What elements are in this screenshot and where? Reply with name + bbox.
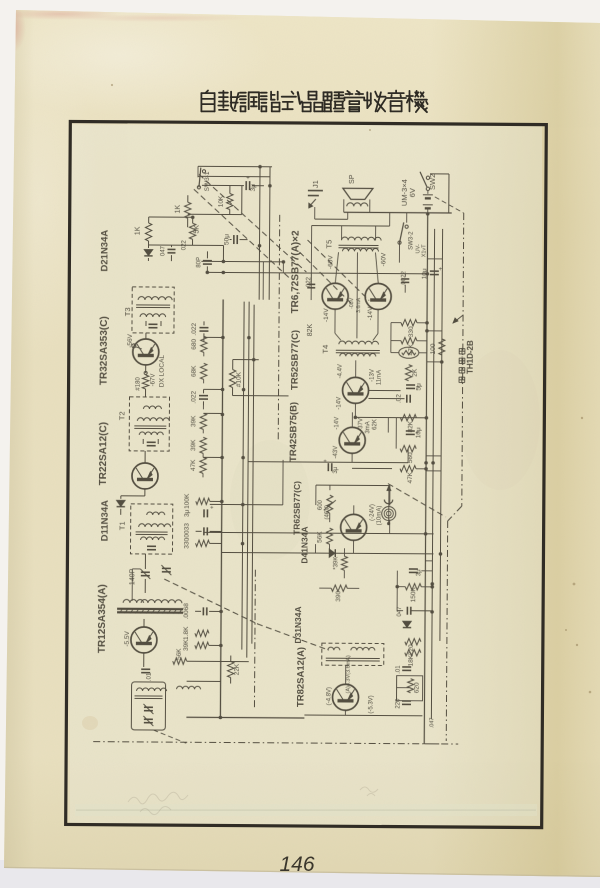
svg-text:47K: 47K (190, 459, 197, 471)
svg-text:+: + (323, 459, 327, 465)
svg-text:TR82SA12(A): TR82SA12(A) (295, 647, 306, 707)
svg-text:39K: 39K (190, 415, 197, 427)
svg-text:80P: 80P (196, 257, 202, 268)
svg-text:TR22SA12(C): TR22SA12(C) (98, 422, 109, 485)
svg-text:-14V: -14V (336, 397, 342, 410)
svg-text:(-4.8V): (-4.8V) (326, 687, 332, 705)
svg-text:*39K: *39K (333, 557, 339, 570)
svg-text:SW2: SW2 (428, 174, 437, 190)
svg-text:3μ: 3μ (184, 509, 191, 517)
svg-text:SW3-2: SW3-2 (408, 231, 414, 250)
svg-text:680: 680 (191, 338, 198, 349)
svg-text:39K: 39K (183, 639, 190, 651)
svg-text:3mA: 3mA (365, 421, 371, 433)
svg-text:100: 100 (430, 343, 437, 354)
svg-text:10μ: 10μ (415, 427, 422, 438)
svg-text:T2: T2 (117, 411, 126, 420)
svg-text:.0068: .0068 (183, 603, 190, 620)
svg-text:T5: T5 (324, 240, 333, 249)
svg-text:-14V: -14V (323, 308, 330, 322)
svg-text:SW3-1: SW3-1 (204, 171, 211, 191)
svg-text:D31N34A: D31N34A (293, 606, 303, 643)
svg-text:56K: 56K (317, 531, 324, 543)
svg-text:1K: 1K (175, 205, 182, 214)
svg-text:1.8K: 1.8K (183, 626, 190, 640)
svg-text:047: 047 (397, 606, 403, 617)
svg-text:140P: 140P (129, 568, 136, 585)
svg-text:.0033: .0033 (184, 523, 191, 540)
svg-text:150K: 150K (410, 586, 417, 602)
svg-text:022: 022 (181, 240, 187, 251)
svg-text:330: 330 (184, 537, 191, 548)
svg-text:6V: 6V (408, 188, 417, 197)
svg-text:-5.5V: -5.5V (124, 630, 131, 646)
svg-text:-56V: -56V (127, 333, 134, 347)
svg-text:620: 620 (414, 682, 421, 693)
svg-text:-60V: -60V (380, 252, 387, 266)
svg-text:146: 146 (279, 853, 314, 876)
svg-text:68K: 68K (191, 365, 198, 377)
svg-text:+: + (210, 505, 214, 511)
svg-text:-67V: -67V (151, 374, 157, 387)
svg-text:56K: 56K (176, 648, 183, 660)
svg-text:T1: T1 (118, 521, 127, 530)
svg-text:390: 390 (335, 590, 342, 601)
svg-text:TR6,72SB77(A)×2: TR6,72SB77(A)×2 (290, 230, 302, 314)
svg-text:-37V: -37V (358, 418, 364, 431)
svg-text:#180: #180 (136, 377, 142, 391)
svg-text:22K: 22K (234, 663, 241, 675)
svg-text:(-24V): (-24V) (370, 504, 376, 521)
svg-text:-08V: -08V (349, 297, 355, 309)
svg-text:D21N34A: D21N34A (99, 230, 110, 272)
svg-text:.022: .022 (191, 323, 198, 336)
svg-text:-43V: -43V (333, 446, 339, 459)
svg-text:47K: 47K (407, 471, 414, 483)
svg-text:TH1D-2B: TH1D-2B (466, 340, 475, 374)
svg-text:#10K: #10K (236, 371, 243, 387)
svg-text:62K: 62K (372, 419, 378, 430)
svg-text:.01: .01 (396, 665, 402, 674)
svg-text:3μ: 3μ (416, 569, 422, 576)
svg-text:82K: 82K (307, 323, 314, 336)
svg-text:D41N34A: D41N34A (299, 526, 309, 563)
svg-text:-4.4V: -4.4V (338, 364, 344, 378)
svg-text:-13V: -13V (370, 369, 376, 382)
svg-text:18K: 18K (408, 654, 415, 666)
svg-text:T3: T3 (123, 307, 132, 316)
svg-text:330: 330 (408, 326, 415, 337)
svg-text:600: 600 (318, 499, 324, 510)
svg-text:X1vT: X1vT (421, 244, 427, 258)
svg-text:TR32SA353(C): TR32SA353(C) (99, 316, 110, 385)
svg-text:1K: 1K (135, 226, 142, 235)
svg-text:T4: T4 (321, 345, 330, 354)
svg-text:100K: 100K (184, 493, 191, 509)
svg-text:(A)4.3V(3.6mA): (A)4.3V(3.6mA) (346, 655, 352, 693)
svg-text:.047: .047 (429, 717, 435, 728)
svg-text:TR42SB75(B): TR42SB75(B) (288, 402, 299, 462)
svg-text:TR12SA354(A): TR12SA354(A) (97, 584, 108, 653)
svg-text:11mA: 11mA (377, 370, 383, 385)
svg-text:D11N34A: D11N34A (100, 500, 111, 541)
svg-text:047: 047 (160, 245, 166, 256)
svg-text:5K: 5K (194, 225, 201, 234)
svg-text:3μ: 3μ (333, 466, 339, 473)
svg-text:DX LOCAL: DX LOCAL (159, 355, 166, 388)
svg-text:-60V: -60V (327, 255, 334, 269)
svg-text:39K: 39K (190, 439, 197, 451)
svg-text:(-5.3V): (-5.3V) (368, 695, 374, 713)
svg-text:2K: 2K (412, 368, 419, 377)
svg-text:3μ: 3μ (250, 184, 257, 192)
svg-text:SP: SP (349, 174, 356, 184)
svg-text:50μ: 50μ (224, 234, 231, 245)
svg-text:.01: .01 (147, 672, 153, 681)
svg-text:.022: .022 (190, 391, 197, 404)
svg-text:J1: J1 (311, 180, 320, 188)
svg-text:(10mA): (10mA) (377, 506, 383, 526)
svg-text:-14V: -14V (367, 306, 374, 320)
svg-text:-14V: -14V (334, 417, 340, 430)
svg-text:5μ: 5μ (416, 383, 423, 391)
svg-text:TR52SB77(C): TR52SB77(C) (290, 330, 301, 390)
